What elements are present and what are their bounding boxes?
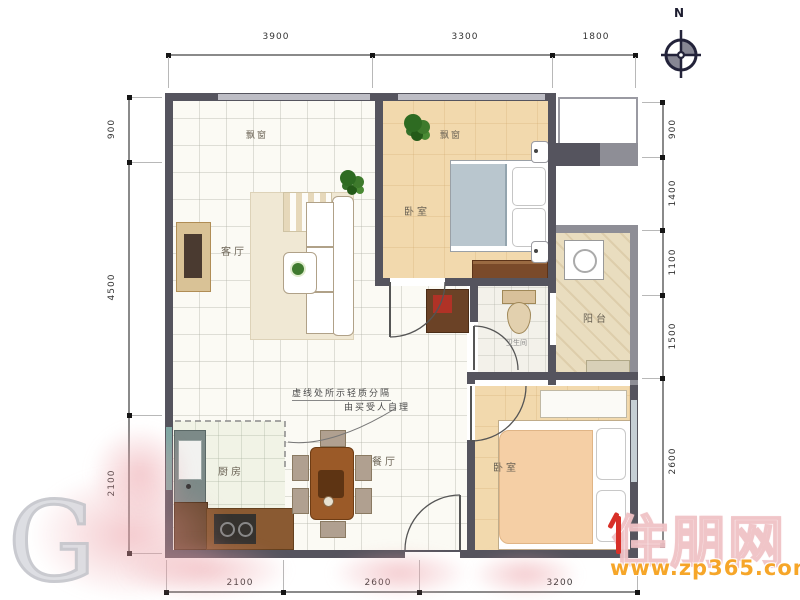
dim-label-left-1: 900 [107,109,119,149]
watermark-red-accent [616,516,621,554]
dim-label-right-1: 900 [668,109,680,149]
bay-window-label: 飘窗 [246,128,268,141]
dim-extension [642,157,660,158]
annotation-leader-line [288,408,396,443]
dim-extension [552,57,553,88]
room-label-bedroom2: 卧室 [493,459,519,474]
pink-watermark-blob [90,425,190,520]
room-label-bedroom1: 卧室 [404,203,430,218]
dim-extension [132,162,162,163]
dim-label-right-2: 1400 [668,173,680,213]
bedroom2-door-arc [471,386,526,441]
dim-label-right-5: 2600 [668,441,680,481]
annotation-line1: 虚线处所示轻质分隔 [292,386,391,401]
dim-extension [168,57,169,88]
room-label-living: 客厅 [221,243,247,258]
dim-line-top [168,54,635,56]
dim-label-right-4: 1500 [668,316,680,356]
dim-tick [660,376,665,381]
dim-extension [132,415,162,416]
floorplan-canvas: 飘窗 飘窗 卧室 客厅 阳台 卫生间 厨房 餐厅 卧室 虚线处所示轻质分隔 由买… [0,0,800,600]
dim-label-top-1: 3900 [251,32,301,43]
watermark-url: www.zp365.com [610,556,800,580]
pink-watermark-blob [120,540,290,600]
dim-extension [132,97,162,98]
dim-label-top-3: 1800 [571,32,621,43]
dim-label-right-3: 1100 [668,242,680,282]
compass-icon [659,30,703,78]
annotation-line2: 由买受人自理 [344,400,410,413]
dim-extension [635,57,636,88]
room-label-kitchen: 厨房 [218,463,244,478]
dim-label-top-2: 3300 [440,32,490,43]
room-label-bathroom: 卫生间 [506,338,527,348]
compass-north-label: N [674,6,684,20]
dim-tick [660,100,665,105]
kitchen-partition-dashed [175,421,285,467]
bedroom1-door-arc [390,282,445,337]
dim-tick [660,228,665,233]
dim-extension [372,57,373,88]
watermark-corner-letter: G [8,478,96,600]
pink-watermark-blob [330,548,470,598]
bay-window-label: 飘窗 [440,128,462,141]
dim-extension [642,378,660,379]
dim-extension [642,102,660,103]
dim-extension [642,230,660,231]
dim-extension [642,295,660,296]
dim-label-left-2: 4500 [107,267,119,307]
room-label-dining: 餐厅 [372,453,398,468]
dim-line-right [662,102,664,545]
dim-tick [660,155,665,160]
dim-tick [635,590,640,595]
pink-watermark-blob [470,552,580,597]
room-label-balcony: 阳台 [583,310,609,325]
entry-door-arc [405,495,460,550]
dim-tick [281,590,286,595]
bathroom-door-arc [474,326,518,370]
dim-tick [660,293,665,298]
